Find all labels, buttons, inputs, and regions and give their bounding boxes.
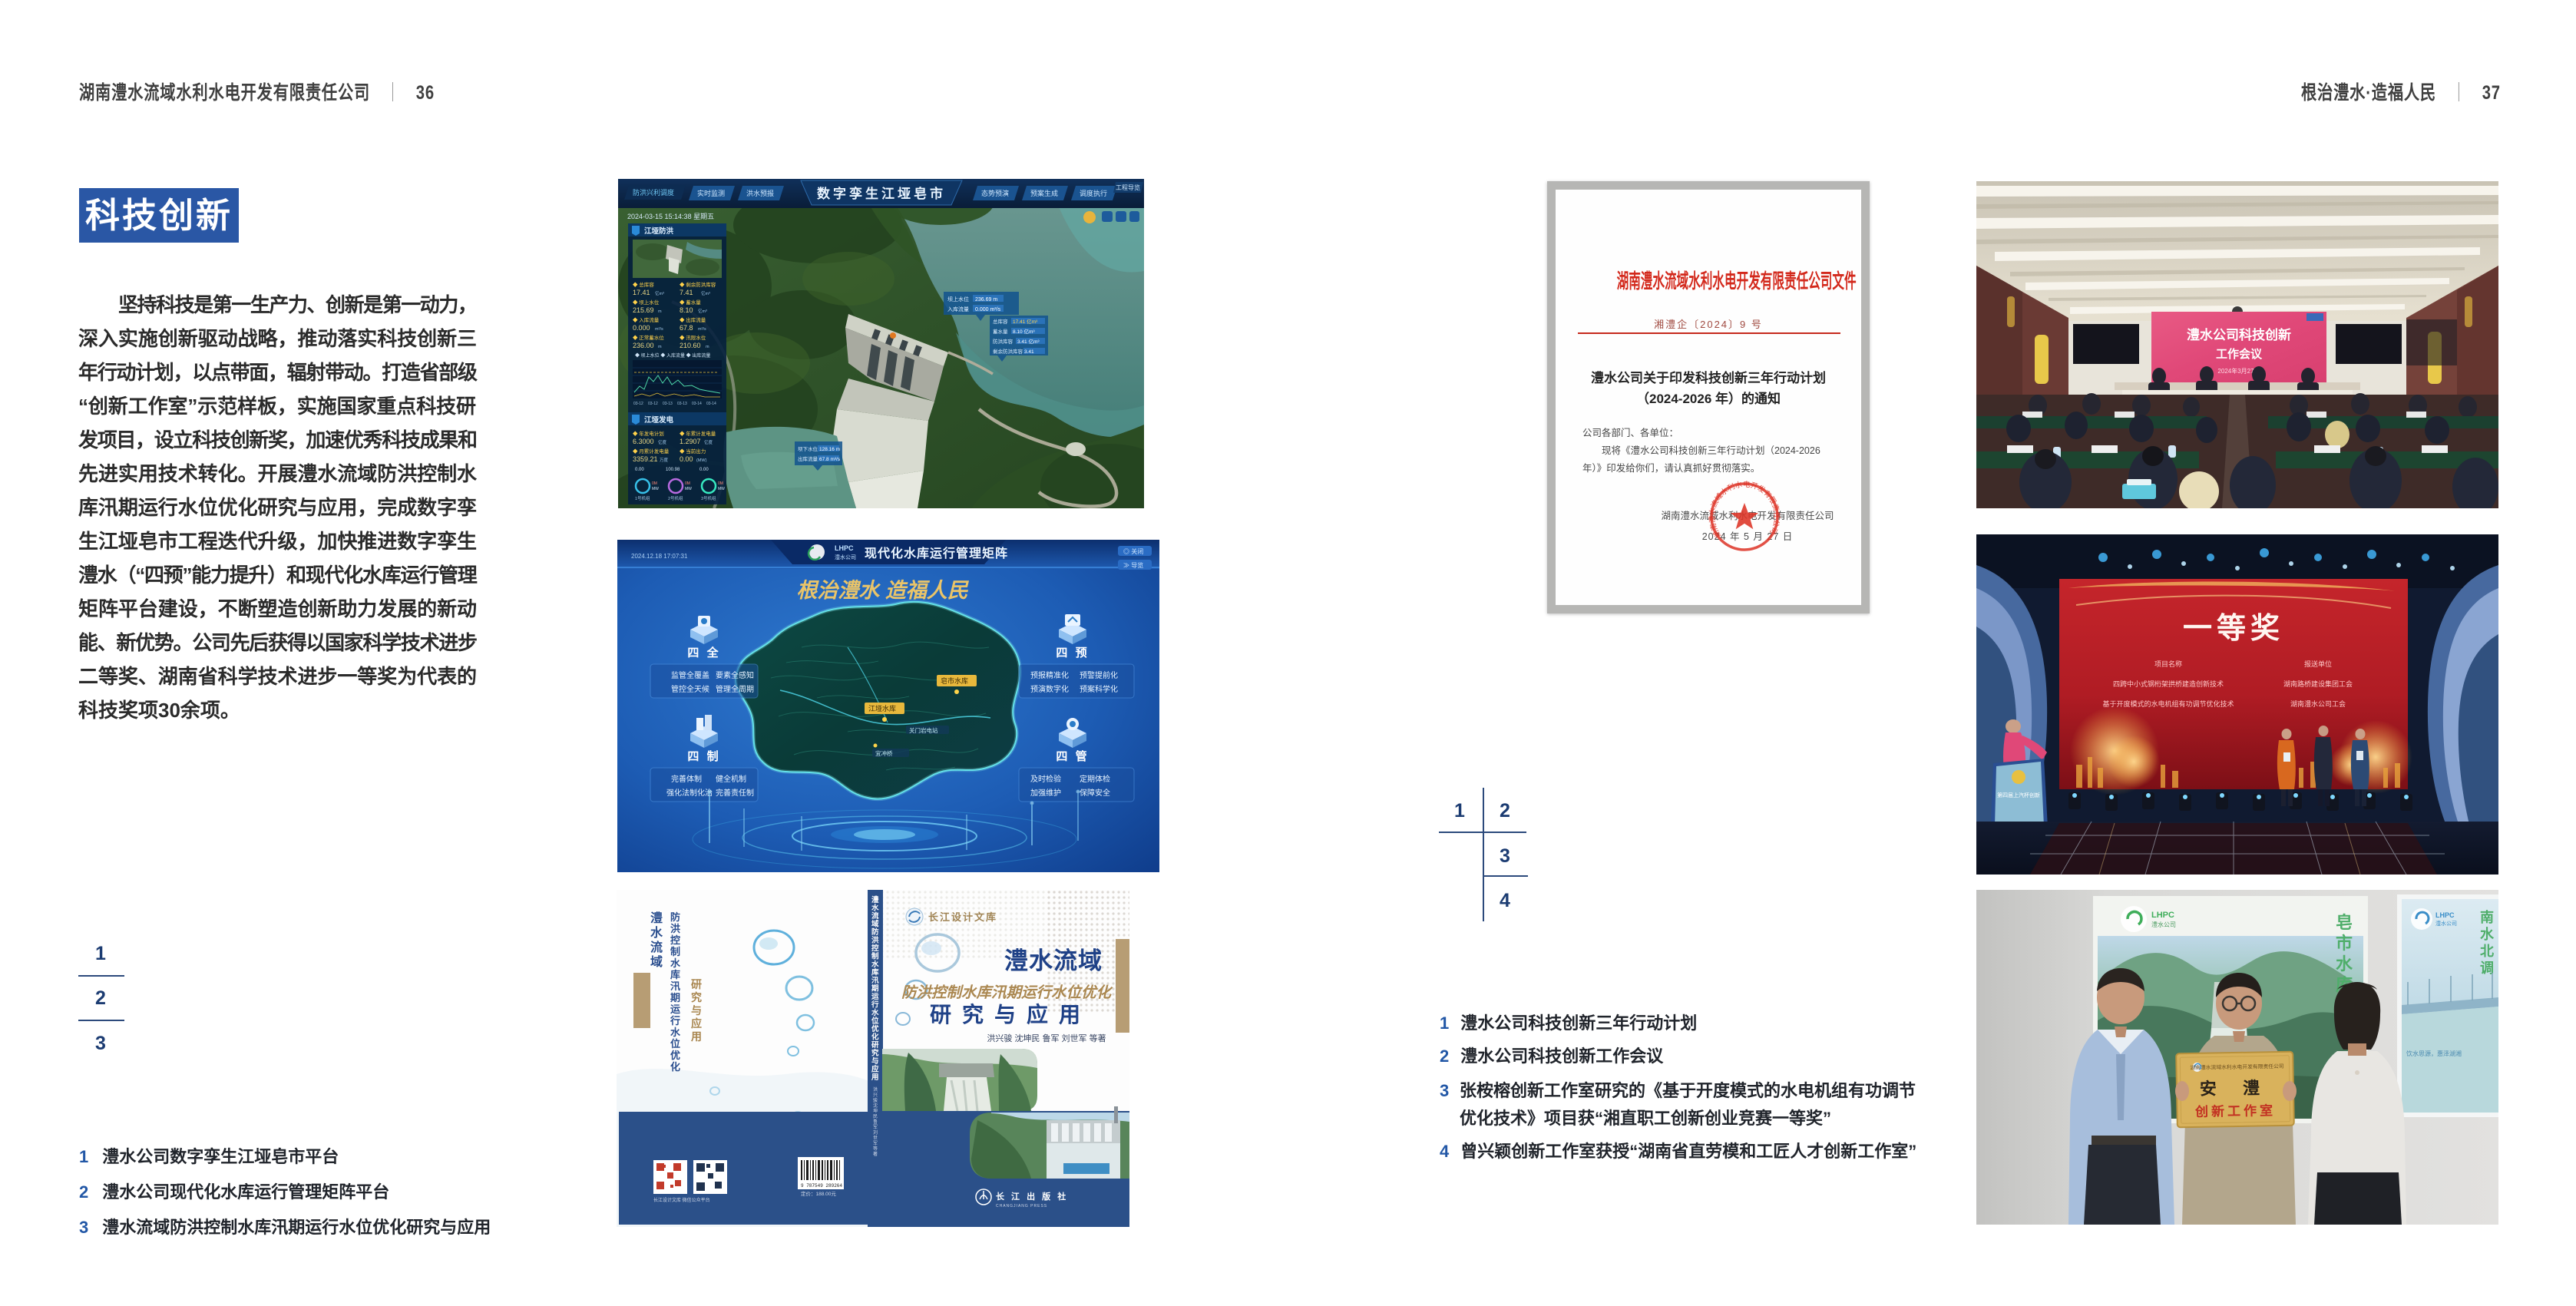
svg-text:调度执行: 调度执行 [1080,189,1107,197]
svg-text:四 全: 四 全 [687,646,720,660]
svg-text:67.8: 67.8 [680,324,693,332]
svg-text:3359.21: 3359.21 [633,455,658,463]
svg-text:0.000 m³/s: 0.000 m³/s [975,307,1001,312]
svg-text:剩余防洪库容: 剩余防洪库容 [993,348,1023,355]
svg-text:m: m [706,345,709,349]
svg-text:预报精准化: 预报精准化 [1030,670,1069,680]
svg-text:数字孪生江垭皂市: 数字孪生江垭皂市 [817,186,946,201]
svg-text:MW: MW [652,487,659,491]
svg-text:03-14: 03-14 [706,402,716,406]
svg-text:江垭发电: 江垭发电 [644,415,674,425]
svg-text:关门岩电站: 关门岩电站 [909,726,938,734]
svg-text:m³/s: m³/s [655,327,663,332]
svg-text:0.000: 0.000 [633,324,650,332]
svg-text:健全机制: 健全机制 [716,774,746,784]
svg-text:洪兴骏沈坤民鲁军刘世军等著: 洪兴骏沈坤民鲁军刘世军等著 [873,1086,878,1157]
svg-text:万度: 万度 [660,457,669,463]
svg-text:◆ 蓄水量: ◆ 蓄水量 [680,299,701,306]
svg-text:亿m³: 亿m³ [698,308,707,314]
svg-text:◆ 月累计发电量: ◆ 月累计发电量 [633,448,670,455]
svg-text:江垭水库: 江垭水库 [868,704,896,713]
svg-text:完善体制: 完善体制 [671,774,702,784]
svg-text:03-13: 03-13 [677,402,687,406]
svg-text:预案科学化: 预案科学化 [1080,684,1118,694]
svg-text:澧水公司: 澧水公司 [2151,921,2176,928]
svg-text:3.41: 3.41 [1024,349,1034,355]
svg-text:坝上水位: 坝上水位 [947,296,969,303]
svg-text:1号机组: 1号机组 [635,495,650,501]
svg-text:完善责任制: 完善责任制 [716,788,754,798]
svg-text:亿度: 亿度 [658,439,667,445]
svg-text:2号机组: 2号机组 [668,495,683,501]
svg-text:预警提前化: 预警提前化 [1080,670,1118,680]
svg-text:2024.12.18 17:07:31: 2024.12.18 17:07:31 [631,553,688,560]
svg-text:215.69: 215.69 [633,306,654,314]
svg-text:6.3000: 6.3000 [633,438,654,445]
svg-text:100.98: 100.98 [666,468,680,472]
svg-text:预演数字化: 预演数字化 [1030,684,1069,694]
svg-text:(MW): (MW) [696,458,707,463]
svg-text:MW: MW [718,487,725,491]
svg-text:◎ 关闭: ◎ 关闭 [1123,547,1143,555]
svg-text:m³/s: m³/s [698,327,706,332]
svg-text:LHPC: LHPC [2151,911,2174,920]
svg-text:17.41: 17.41 [633,289,650,296]
svg-text:◆ 坝上水位: ◆ 坝上水位 [633,299,660,306]
svg-text:长江设计文库 微信公众平台: 长江设计文库 微信公众平台 [653,1197,710,1203]
svg-text:防洪兴利调度: 防洪兴利调度 [633,188,674,197]
svg-text:LHPC: LHPC [2435,911,2455,919]
svg-text:防洪控制水库汛期运行水位优化: 防洪控制水库汛期运行水位优化 [670,911,681,1073]
svg-text:定期体检: 定期体检 [1080,774,1110,784]
svg-text:四 制: 四 制 [687,749,720,763]
svg-text:监管全覆盖: 监管全覆盖 [671,670,709,680]
svg-text:澧水公司: 澧水公司 [2435,920,2457,927]
svg-text:m: m [658,309,662,314]
svg-text:澧水流域防洪控制水库汛期运行水位优化研究与应用: 澧水流域防洪控制水库汛期运行水位优化研究与应用 [871,895,879,1082]
svg-text:128.16 m: 128.16 m [819,447,840,452]
svg-text:亿m³: 亿m³ [655,290,664,296]
svg-text:入库流量: 入库流量 [947,306,969,312]
svg-text:亿m³: 亿m³ [701,290,710,296]
svg-text:0M: 0M [652,481,657,486]
svg-text:安 澧: 安 澧 [2200,1078,2271,1099]
svg-text:研究与应用: 研究与应用 [930,1002,1091,1027]
svg-text:长 江 出 版 社: 长 江 出 版 社 [996,1191,1068,1202]
svg-text:管控全天候: 管控全天候 [671,684,709,694]
svg-text:工作会议: 工作会议 [2216,347,2263,361]
svg-text:MW: MW [685,487,692,491]
svg-text:四 预: 四 预 [1056,646,1089,660]
svg-text:◆ 年累计发电量: ◆ 年累计发电量 [680,430,716,437]
svg-text:0.00: 0.00 [699,468,709,472]
svg-text:防洪库容: 防洪库容 [993,338,1014,345]
svg-text:实时监测: 实时监测 [697,189,725,197]
svg-text:◆ 坝上水位 ◆ 入库流量 ◆ 出库流量: ◆ 坝上水位 ◆ 入库流量 ◆ 出库流量 [635,352,710,359]
svg-text:第四届上汽杯创新: 第四届上汽杯创新 [1997,792,2040,798]
svg-text:03-12: 03-12 [648,402,658,406]
svg-text:67.8 m³/s: 67.8 m³/s [819,457,841,462]
svg-text:210.60: 210.60 [680,342,701,349]
svg-text:保障安全: 保障安全 [1080,788,1110,798]
svg-text:3.41 亿m³: 3.41 亿m³ [1017,338,1040,345]
svg-text:要素全感知: 要素全感知 [716,670,754,680]
svg-text:宜冲桥: 宜冲桥 [875,749,893,757]
svg-text:◆ 入库流量: ◆ 入库流量 [633,316,660,323]
svg-text:0M: 0M [718,481,723,486]
svg-text:总库容: 总库容 [993,318,1008,325]
svg-text:研究与应用: 研究与应用 [691,978,702,1043]
svg-text:9 787549 289264: 9 787549 289264 [801,1183,842,1189]
svg-text:236.00: 236.00 [633,342,654,349]
svg-text:◆ 总库容: ◆ 总库容 [633,281,654,288]
svg-text:现代化水库运行管理矩阵: 现代化水库运行管理矩阵 [865,546,1008,560]
svg-text:0.00: 0.00 [680,455,693,463]
svg-text:1.2907: 1.2907 [680,438,701,445]
svg-text:≫ 导览: ≫ 导览 [1123,561,1143,569]
svg-text:03-12: 03-12 [633,402,643,406]
svg-text:0.00: 0.00 [635,468,644,472]
svg-text:蓄水量: 蓄水量 [993,328,1008,335]
svg-text:洪兴骏 沈坤民 鲁军 刘世军 等著: 洪兴骏 沈坤民 鲁军 刘世军 等著 [987,1033,1106,1043]
svg-text:7.41: 7.41 [680,289,693,296]
svg-text:出库流量: 出库流量 [798,455,818,462]
svg-text:17.41 亿m³: 17.41 亿m³ [1013,318,1038,325]
svg-text:亿度: 亿度 [704,439,713,445]
svg-text:0M: 0M [685,481,690,486]
svg-text:加强维护: 加强维护 [1030,788,1061,798]
svg-text:基于开度模式的水电机组有功调节优化技术: 基于开度模式的水电机组有功调节优化技术 [2102,699,2234,708]
svg-text:LHPC: LHPC [835,544,854,552]
svg-text:管理全周期: 管理全周期 [716,684,754,694]
svg-text:◆ 剩余防洪库容: ◆ 剩余防洪库容 [680,281,716,288]
svg-text:项目名称: 项目名称 [2154,660,2182,668]
svg-text:湖南澧水公司工会: 湖南澧水公司工会 [2290,699,2346,708]
svg-text:四跨中小式钢桁架拱桥建造创新技术: 四跨中小式钢桁架拱桥建造创新技术 [2113,679,2224,688]
svg-text:◆ 年发电计划: ◆ 年发电计划 [633,430,664,437]
svg-text:根治澧水 造福人民: 根治澧水 造福人民 [796,579,970,602]
svg-text:◆ 当前出力: ◆ 当前出力 [680,448,706,455]
svg-text:一等奖: 一等奖 [2183,613,2284,645]
svg-text:湖南路桥建设集团工会: 湖南路桥建设集团工会 [2283,679,2353,688]
svg-text:236.69 m: 236.69 m [975,297,997,303]
svg-text:洪水预报: 洪水预报 [746,189,774,197]
svg-text:江垭防洪: 江垭防洪 [644,226,674,236]
svg-text:强化法制化治: 强化法制化治 [666,788,713,798]
svg-text:皂市水库: 皂市水库 [941,676,968,685]
svg-text:◆ 正常蓄水位: ◆ 正常蓄水位 [633,334,664,341]
svg-text:坝下水位: 坝下水位 [798,445,818,452]
svg-text:2024-03-15 15:14:38 星期五: 2024-03-15 15:14:38 星期五 [627,213,714,220]
svg-text:◆ 汛限水位: ◆ 汛限水位 [680,334,706,341]
svg-text:创新工作室: 创新工作室 [2194,1103,2276,1119]
svg-text:及时检验: 及时检验 [1030,774,1061,784]
svg-text:03-14: 03-14 [692,402,702,406]
svg-text:◆ 出库流量: ◆ 出库流量 [680,316,706,323]
svg-text:m: m [658,345,662,349]
svg-text:澧水公司: 澧水公司 [835,554,856,560]
svg-text:澧水流域: 澧水流域 [1004,947,1103,974]
svg-text:四 管: 四 管 [1056,749,1089,763]
svg-text:8.10: 8.10 [680,306,693,314]
svg-text:3号机组: 3号机组 [701,495,716,501]
svg-text:态势预演: 态势预演 [981,189,1009,197]
svg-text:防洪控制水库汛期运行水位优化: 防洪控制水库汛期运行水位优化 [901,984,1114,1001]
svg-text:报送单位: 报送单位 [2304,660,2332,668]
svg-text:03-13: 03-13 [663,402,673,406]
svg-text:定价：188.00元: 定价：188.00元 [801,1190,836,1197]
svg-text:CHANGJIANG PRESS: CHANGJIANG PRESS [996,1204,1047,1208]
svg-text:饮水思源，惠泽湖湘: 饮水思源，惠泽湖湘 [2406,1050,2462,1057]
svg-text:长江设计文库: 长江设计文库 [928,911,997,923]
svg-text:工程导览: 工程导览 [1116,184,1140,191]
svg-text:澧水公司科技创新: 澧水公司科技创新 [2187,327,2291,342]
svg-text:8.10 亿m³: 8.10 亿m³ [1013,328,1035,335]
svg-text:预案生成: 预案生成 [1030,189,1058,197]
